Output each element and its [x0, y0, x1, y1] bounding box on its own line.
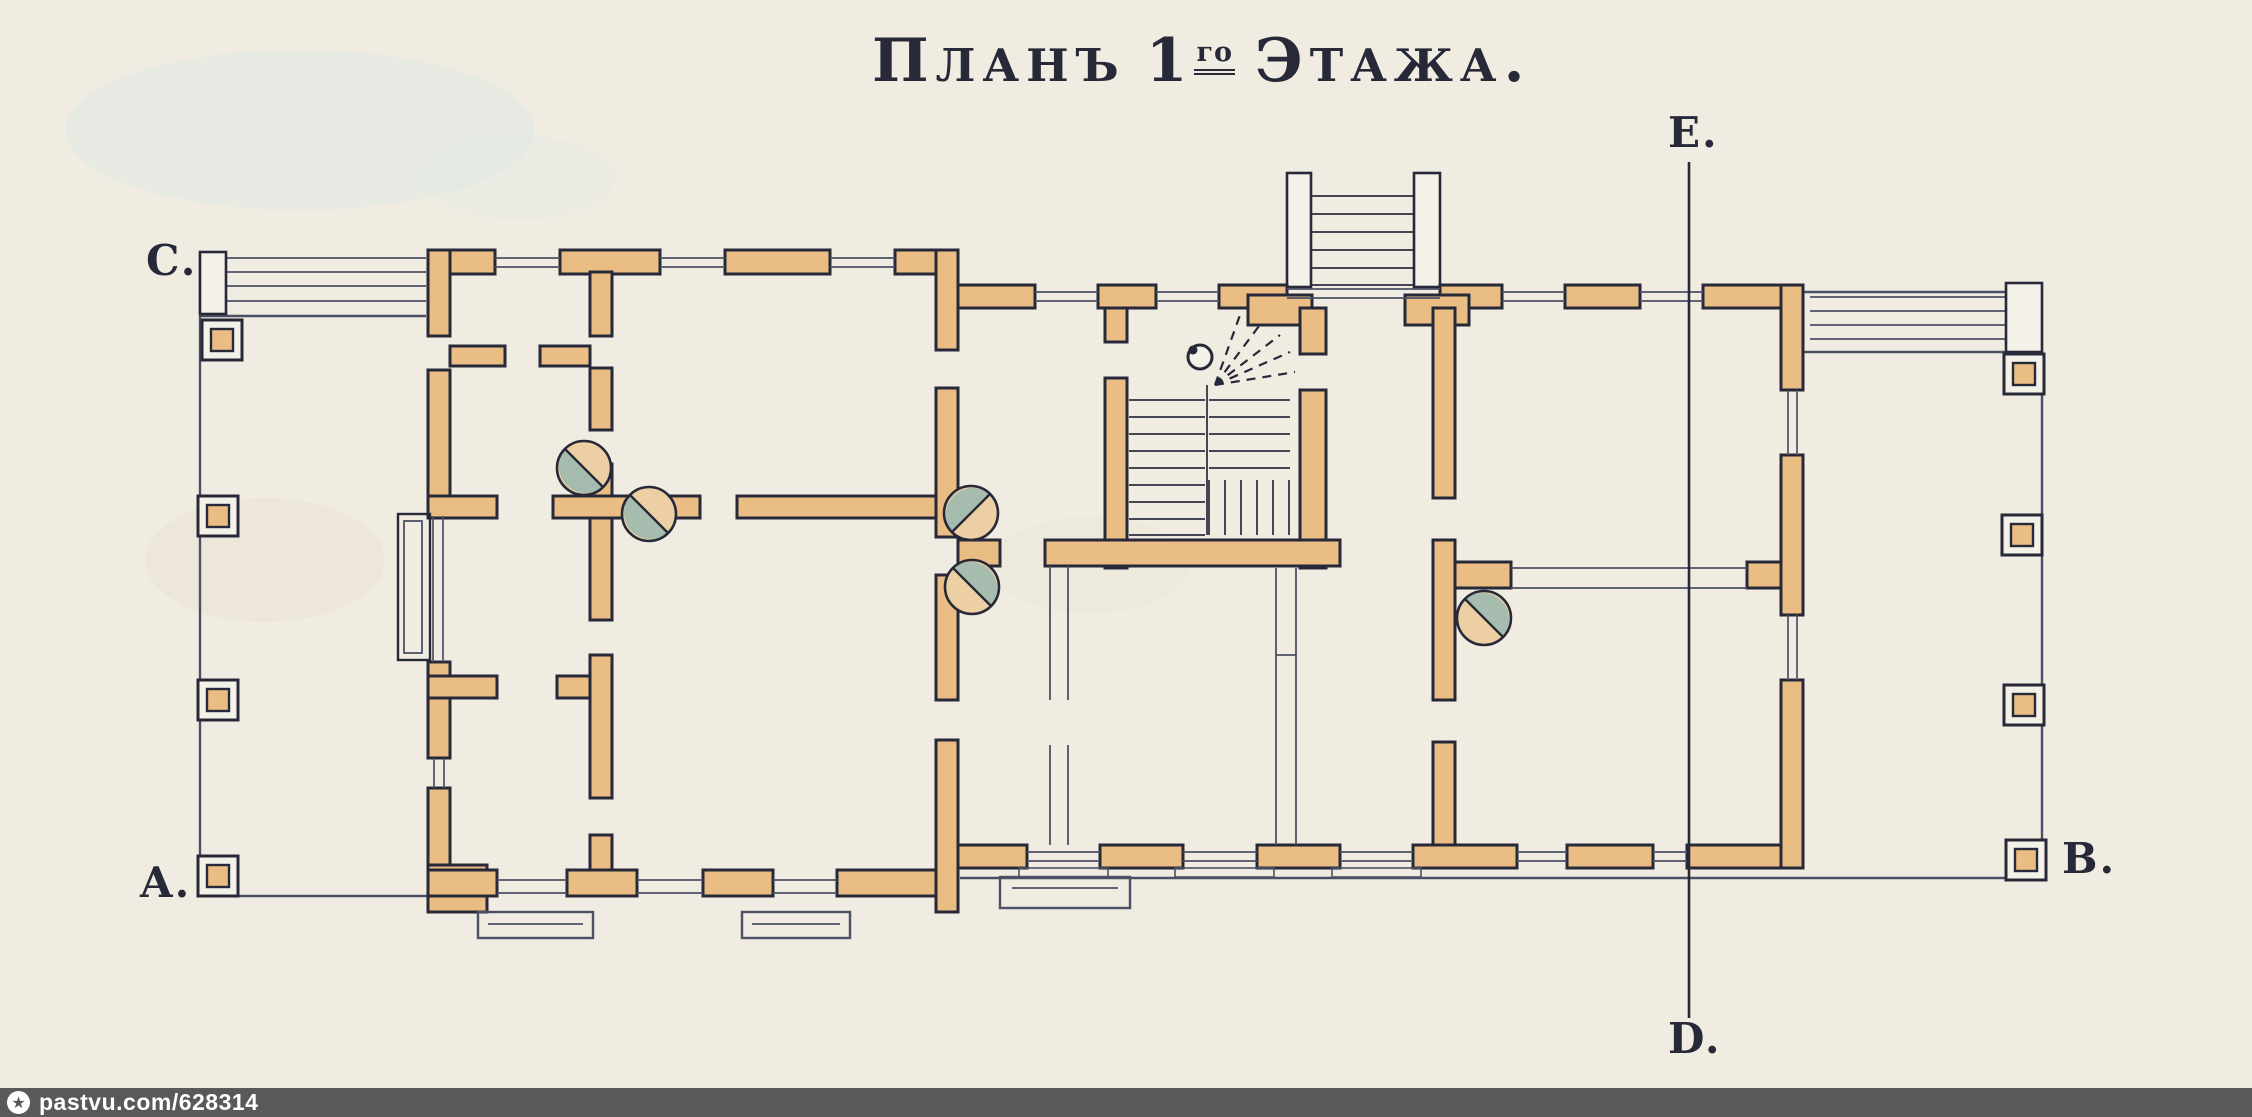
drawing-title: ПЛАНЪ1гоЭТАЖА.: [872, 26, 1492, 96]
title-word2-initial: Э: [1255, 26, 1310, 96]
pastvu-star-icon: ★: [7, 1091, 30, 1114]
left-wing-walls: [398, 250, 958, 938]
thin-partition: [1276, 568, 1296, 845]
terrace-column: [2004, 354, 2044, 394]
tile-stove: [944, 486, 998, 540]
watermark-text: pastvu.com/628314: [39, 1089, 258, 1116]
terrace-column: [2006, 840, 2046, 880]
porch-step: [1000, 877, 1130, 908]
thin-partition: [1511, 568, 1747, 588]
back-porch-stairs: [1287, 173, 1440, 287]
terrace-column: [198, 680, 238, 720]
tile-stove: [945, 560, 999, 614]
terrace-column: [2004, 685, 2044, 725]
scanned-floor-plan-page: { "title": { "w1i": "П", "w1r": "ЛАНЪ", …: [0, 0, 2252, 1117]
title-word1-initial: П: [872, 26, 936, 96]
tile-stove: [1457, 591, 1511, 645]
watermark-bar: ★ pastvu.com/628314: [0, 1088, 2252, 1117]
section-marker-b: B.: [2062, 838, 2116, 880]
section-marker-d: D.: [1668, 1018, 1722, 1060]
central-stair: [1129, 315, 1295, 535]
terrace-post: [200, 252, 226, 314]
terrace-column: [198, 856, 238, 896]
section-marker-c: C.: [146, 240, 197, 282]
terrace-column: [202, 320, 242, 360]
section-marker-a: A.: [140, 862, 191, 904]
tile-stove: [557, 441, 611, 495]
terrace-column: [2002, 515, 2042, 555]
entry-steps: [478, 912, 850, 938]
title-numeral: 1: [1146, 26, 1195, 96]
title-period: .: [1504, 26, 1532, 96]
title-word2-rest: ТАЖА: [1310, 39, 1504, 92]
floor-plan-drawing: [0, 0, 2252, 1117]
title-numeral-superscript: го: [1194, 37, 1235, 75]
terrace-post: [2006, 283, 2042, 352]
tile-stove: [622, 487, 676, 541]
right-terrace: [1803, 283, 2046, 880]
bay-window: [398, 514, 443, 662]
terrace-column: [198, 496, 238, 536]
title-word1-rest: ЛАНЪ: [936, 39, 1126, 92]
section-marker-e: E.: [1668, 112, 1719, 154]
